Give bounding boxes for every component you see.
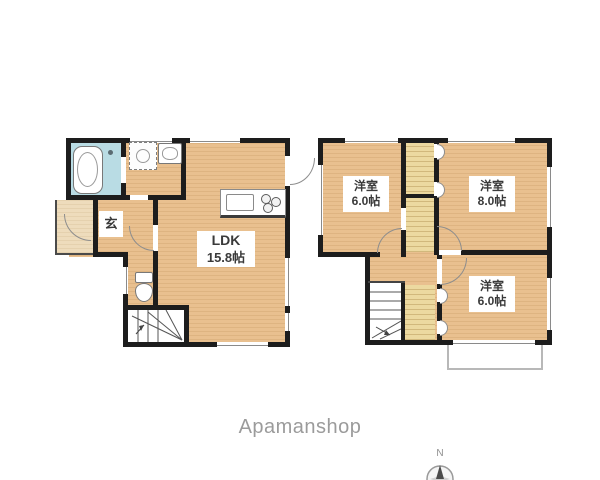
bathtub-icon xyxy=(73,146,103,194)
window xyxy=(217,342,268,347)
washing-machine-icon xyxy=(129,142,157,170)
door-opening xyxy=(130,195,148,200)
wall xyxy=(93,197,98,257)
floor2-plan: 洋室 6.0帖 洋室 8.0帖 洋室 6.0帖 xyxy=(310,0,600,390)
wall xyxy=(401,283,405,340)
entrance-text: 玄 xyxy=(99,216,123,232)
floorplan-canvas: 玄 LDK 15.8帖 xyxy=(0,0,600,480)
room-nw-size: 6.0帖 xyxy=(343,194,389,209)
window xyxy=(448,138,515,143)
window xyxy=(190,138,240,143)
wall xyxy=(66,138,71,200)
balcony-sliding-door xyxy=(453,340,535,345)
room-nw-label: 洋室 6.0帖 xyxy=(343,176,389,212)
door-opening xyxy=(121,157,126,183)
window xyxy=(285,313,290,331)
window xyxy=(123,267,128,294)
wall xyxy=(153,197,158,309)
compass-north-label: N xyxy=(422,448,458,460)
room-nw-name: 洋室 xyxy=(343,179,389,194)
ldk-size: 15.8帖 xyxy=(197,250,255,266)
wall xyxy=(404,194,437,198)
floor1-plan: 玄 LDK 15.8帖 xyxy=(0,0,310,390)
kitchen-counter-icon xyxy=(220,189,286,218)
window xyxy=(345,138,398,143)
compass-rose xyxy=(422,462,458,480)
brand-watermark: Apamanshop xyxy=(180,416,420,439)
window xyxy=(547,167,552,227)
room-se-name: 洋室 xyxy=(469,279,515,294)
vanity-sink-icon xyxy=(158,143,182,164)
entrance-label: 玄 xyxy=(99,211,123,237)
floor2-outside-mask xyxy=(316,257,365,346)
door-opening xyxy=(401,208,406,230)
ldk-label: LDK 15.8帖 xyxy=(197,231,255,267)
window xyxy=(285,258,290,306)
room-ne-size: 8.0帖 xyxy=(469,194,515,209)
balcony xyxy=(447,345,543,370)
room-se-size: 6.0帖 xyxy=(469,294,515,309)
closet-lower xyxy=(405,285,435,340)
floor1-outside-mask xyxy=(64,257,123,346)
window xyxy=(547,278,552,330)
room-ne-label: 洋室 8.0帖 xyxy=(469,176,515,212)
staircase-floor2-treads xyxy=(370,283,401,340)
shower-faucet-icon xyxy=(108,150,113,155)
wall xyxy=(184,305,189,347)
room-se-label: 洋室 6.0帖 xyxy=(469,276,515,312)
wall xyxy=(318,252,380,257)
window xyxy=(318,165,323,235)
ldk-name: LDK xyxy=(197,232,255,250)
staircase-floor1-treads xyxy=(128,310,184,342)
room-ne-name: 洋室 xyxy=(469,179,515,194)
compass-icon: N xyxy=(422,448,458,480)
toilet-icon xyxy=(135,272,153,283)
